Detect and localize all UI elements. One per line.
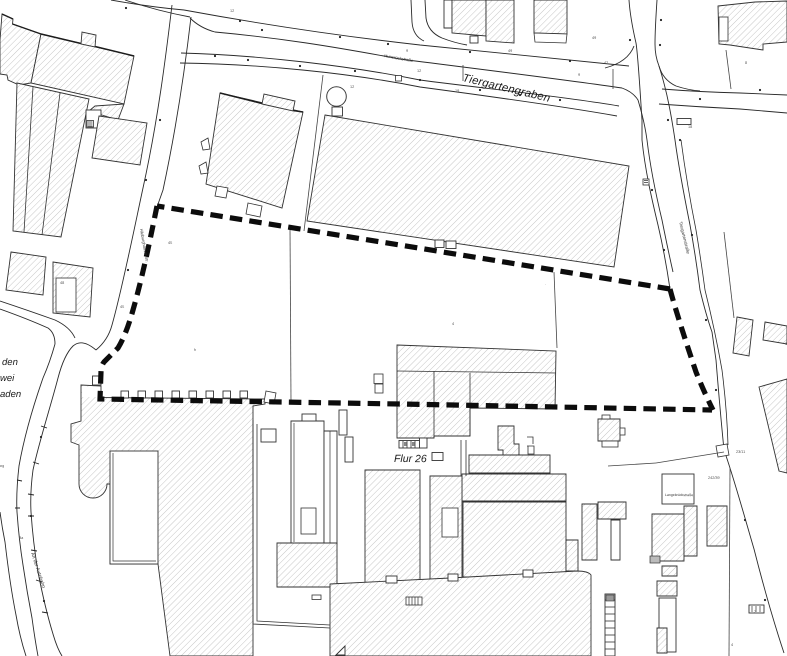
svg-text:242/39: 242/39 — [708, 476, 720, 480]
svg-text:4: 4 — [731, 643, 733, 647]
svg-text:h: h — [194, 348, 196, 352]
svg-text:48: 48 — [60, 281, 64, 285]
svg-text:12: 12 — [350, 85, 354, 89]
svg-text:den: den — [2, 357, 18, 368]
svg-text:8: 8 — [745, 61, 747, 65]
svg-text:Flur 26: Flur 26 — [394, 453, 427, 465]
svg-text:49: 49 — [508, 49, 512, 53]
svg-text:eg: eg — [0, 464, 4, 468]
svg-text:9: 9 — [406, 49, 408, 53]
svg-text:45: 45 — [168, 241, 172, 245]
svg-text:.: . — [310, 567, 311, 571]
svg-text:23/11: 23/11 — [736, 450, 745, 454]
svg-text:18: 18 — [688, 125, 692, 129]
svg-text:9: 9 — [578, 73, 580, 77]
svg-text:2: 2 — [754, 610, 756, 614]
svg-text:aden: aden — [0, 389, 21, 400]
svg-text:4: 4 — [452, 322, 454, 326]
svg-text:49: 49 — [592, 36, 596, 40]
svg-text:19: 19 — [455, 89, 459, 93]
svg-text:45: 45 — [120, 305, 124, 309]
svg-text:.: . — [545, 282, 546, 286]
svg-text:12: 12 — [417, 69, 421, 73]
svg-text:Langebrückstraße: Langebrückstraße — [665, 493, 693, 497]
svg-text:wei: wei — [0, 373, 15, 384]
svg-text:12: 12 — [230, 9, 234, 13]
svg-text:42: 42 — [604, 61, 608, 65]
